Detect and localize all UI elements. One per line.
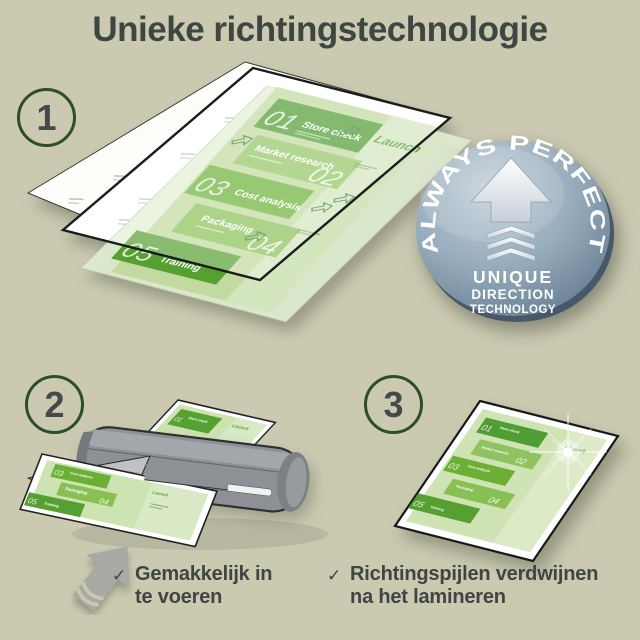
- badge-line-1: UNIQUE: [473, 267, 553, 287]
- laminated-document: 01 Store check Market research 02 03 Cos…: [395, 401, 618, 561]
- caption-arrows-disappear: ✓ Richtingspijlen verdwijnen na het lami…: [327, 563, 617, 609]
- lamination-pouch-stack: 01 Store check Market research 02 03 Cos…: [28, 62, 472, 322]
- page-title: Unieke richtingstechnologie: [0, 10, 640, 50]
- caption-arrows-disappear-text: Richtingspijlen verdwijnen na het lamine…: [350, 563, 598, 609]
- caption-easy-feed: ✓ Gemakkelijk in te voeren: [112, 563, 312, 609]
- badge-line-2: DIRECTION: [471, 287, 554, 302]
- checkmark-icon: ✓: [112, 564, 126, 609]
- caption-easy-feed-text: Gemakkelijk in te voeren: [135, 563, 272, 609]
- scene-finished-document: 01 Store check Market research 02 03 Cos…: [350, 385, 640, 590]
- caption-arrows-line1: Richtingspijlen verdwijnen: [350, 563, 598, 585]
- scene-pouch-illustration: 01 Store check Market research 02 03 Cos…: [0, 55, 640, 385]
- caption-easy-feed-line2: te voeren: [135, 586, 222, 608]
- checkmark-icon: ✓: [327, 564, 341, 609]
- product-infographic: Unieke richtingstechnologie 1 2 3: [0, 0, 640, 640]
- badge-line-3: TECHNOLOGY: [470, 304, 556, 316]
- caption-easy-feed-line1: Gemakkelijk in: [135, 563, 272, 585]
- caption-arrows-line2: na het lamineren: [350, 586, 506, 608]
